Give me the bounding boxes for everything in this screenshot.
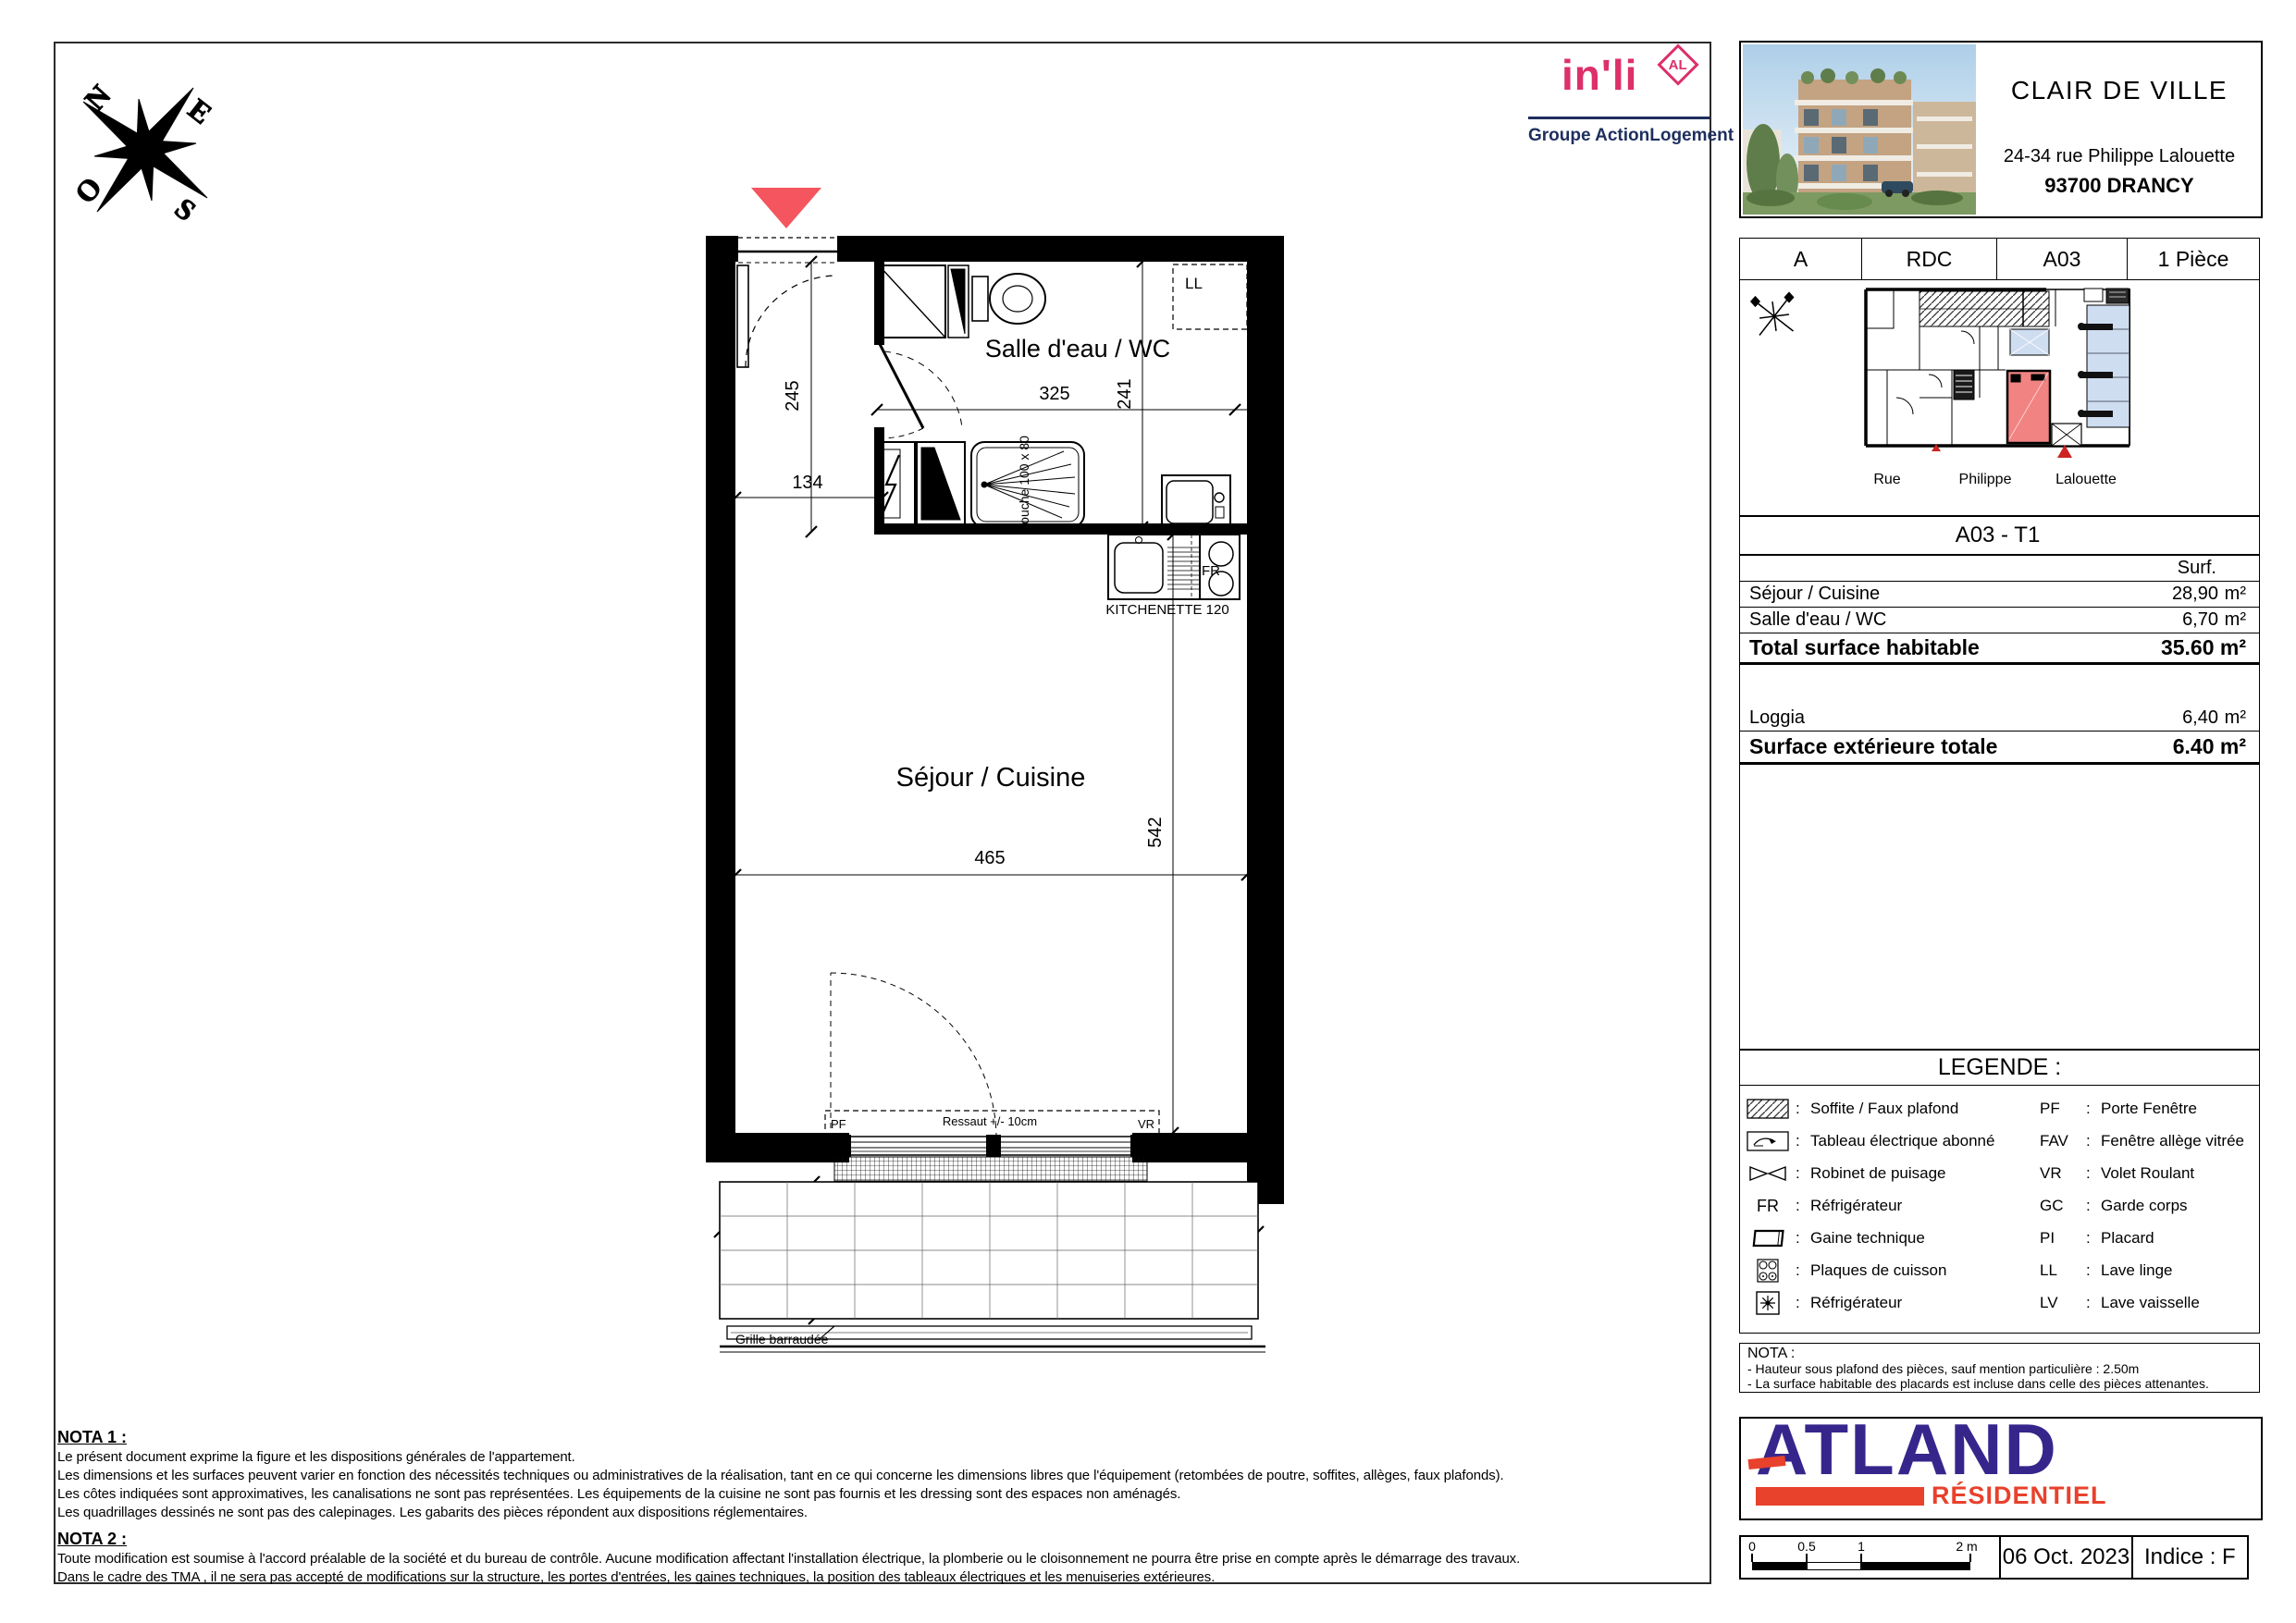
legend-entry: LV : Lave vaisselle [2036, 1289, 2258, 1317]
footer-date-cell: 06 Oct. 2023 [2001, 1537, 2133, 1578]
legend-colon: : [1796, 1164, 1810, 1183]
washing-machine-slot: LL [1173, 264, 1247, 329]
compass-rose-icon: N E O S [68, 79, 218, 227]
street-word: Lalouette [2055, 472, 2117, 487]
nota2-title: NOTA 2 : [57, 1528, 1704, 1550]
surface-col-header-row: Surf. [1740, 556, 2259, 582]
legend-label: Réfrigérateur [1810, 1197, 1902, 1215]
legend-label: Volet Roulant [2101, 1164, 2194, 1183]
project-address: 24-34 rue Philippe Lalouette [1980, 146, 2259, 167]
scale-bar: 0 0.5 1 2 m [1741, 1537, 2001, 1578]
legend-colon: : [2086, 1132, 2101, 1150]
legend-abbr: GC [2036, 1197, 2086, 1215]
nota1-line: Les quadrillages dessinés ne sont pas de… [57, 1504, 1704, 1522]
dim-134: 134 [792, 473, 822, 493]
surface-row-label: Salle d'eau / WC [1749, 609, 2182, 631]
nota1-block: NOTA 1 : Le présent document exprime la … [57, 1426, 1704, 1522]
legend-entry: GC : Garde corps [2036, 1192, 2258, 1220]
fridge-label: FR [1202, 563, 1220, 579]
surface-row: Loggia 6,40 m² [1740, 706, 2259, 732]
legend-label: Plaques de cuisson [1810, 1261, 1946, 1280]
banner-level: RDC [1862, 239, 1997, 279]
legend-colon: : [2086, 1261, 2101, 1280]
scale-seg-2 [1807, 1562, 1861, 1570]
inli-logo: in'li AL Groupe ActionLogement [1517, 48, 1711, 150]
legend-colon: : [1796, 1229, 1810, 1248]
scale-seg-3 [1861, 1562, 1970, 1570]
legend-colon: : [1796, 1132, 1810, 1150]
footer-indice: Indice : F [2144, 1544, 2236, 1570]
nota2-line: Dans le cadre des TMA , il ne sera pas a… [57, 1568, 1704, 1587]
legend-entry: VR : Volet Roulant [2036, 1160, 2258, 1187]
surface-table-title-row: A03 - T1 [1740, 517, 2259, 556]
footer-bar: 0 0.5 1 2 m 06 Oct. 2023 Indice : F [1739, 1535, 2249, 1580]
legend-entry: PF : Porte Fenêtre [2036, 1095, 2258, 1123]
nota2-block: NOTA 2 : Toute modification est soumise … [57, 1528, 1704, 1587]
toilet-icon [972, 274, 1045, 324]
loggia: Grille barraudée [720, 1182, 1265, 1352]
surface-table-title: A03 - T1 [1956, 523, 2041, 548]
mini-compass-icon [1751, 293, 1794, 336]
atland-block: ATLAND RÉSIDENTIEL [1739, 1417, 2263, 1520]
soffite-hatch-icon [1740, 1097, 1796, 1121]
mini-site-plan: Rue Philippe Lalouette [1739, 280, 2260, 514]
legend-abbr: FAV [2036, 1132, 2086, 1150]
legend-abbr: PI [2036, 1229, 2086, 1248]
legend-label: Fenêtre allège vitrée [2101, 1132, 2244, 1150]
dimension-labels: 325 241 245 134 465 542 489 124 [783, 378, 1166, 1265]
legend-colon: : [2086, 1229, 2101, 1248]
surface-row-value: 6,40 [2182, 707, 2218, 729]
inli-al-text: AL [1669, 57, 1687, 73]
legend-label: Porte Fenêtre [2101, 1100, 2197, 1118]
dim-465: 465 [974, 848, 1005, 868]
legend-title: LEGENDE : [1938, 1054, 2061, 1081]
surface-row-unit: m² [2218, 707, 2246, 729]
surface-row-unit: m² [2218, 584, 2246, 605]
entry-door [737, 238, 837, 367]
inli-wordmark: in'li [1562, 50, 1637, 100]
legend-entry: FAV : Fenêtre allège vitrée [2036, 1127, 2258, 1155]
nota1-line: Le présent document exprime la figure et… [57, 1448, 1704, 1467]
french-window: PF VR Ressaut +/- 10cm [825, 973, 1159, 1181]
ventilation-icon [1740, 1291, 1796, 1315]
dim-542: 542 [1145, 817, 1166, 847]
surface-ext-total-value: 6.40 m² [2173, 734, 2246, 759]
floor-plan-sheet: N E O S [0, 0, 2296, 1623]
legend-abbr: PF [2036, 1100, 2086, 1118]
nota-side-line: - La surface habitable des placards est … [1747, 1376, 2252, 1391]
footer-date: 06 Oct. 2023 [2003, 1544, 2129, 1570]
legend-colon: : [2086, 1197, 2101, 1215]
atland-wordmark: ATLAND [1756, 1408, 2058, 1492]
scale-tick-label: 0.5 [1797, 1539, 1815, 1554]
shower-icon: Douche 100 x 80 [971, 436, 1084, 534]
inli-al-badge: AL [1657, 43, 1698, 85]
surface-ext-total-row: Surface extérieure totale 6.40 m² [1740, 732, 2259, 765]
legend-block: LEGENDE : : Soffite / Faux plafond : Tab… [1739, 1050, 2260, 1334]
room-label-living: Séjour / Cuisine [896, 763, 1086, 793]
surface-row-unit: m² [2218, 609, 2246, 631]
legend-colon: : [2086, 1100, 2101, 1118]
atland-red-bar [1756, 1487, 1924, 1506]
legend-colon: : [2086, 1294, 2101, 1312]
surface-row-label: Séjour / Cuisine [1749, 584, 2172, 605]
legend-label: Soffite / Faux plafond [1810, 1100, 1958, 1118]
nota1-line: Les dimensions et les surfaces peuvent v… [57, 1467, 1704, 1485]
inli-underline [1528, 117, 1710, 119]
scale-tick-label: 1 [1858, 1539, 1865, 1554]
vr-label: VR [1138, 1117, 1154, 1131]
surface-total-row: Total surface habitable 35.60 m² [1740, 633, 2259, 665]
plaques-cuisson-icon [1740, 1259, 1796, 1283]
dim-241: 241 [1115, 378, 1135, 409]
ressaut-label: Ressaut +/- 10cm [943, 1114, 1037, 1128]
legend-colon: : [2086, 1164, 2101, 1183]
legend-label: Robinet de puisage [1810, 1164, 1946, 1183]
project-city: 93700 DRANCY [1980, 174, 2259, 198]
dim-325: 325 [1039, 384, 1069, 404]
footer-indice-cell: Indice : F [2133, 1537, 2247, 1578]
surface-row-value: 28,90 [2172, 584, 2218, 605]
duct-icon [948, 265, 969, 338]
nota-side-line: - Hauteur sous plafond des pièces, sauf … [1747, 1361, 2252, 1376]
fr-abbrev: FR [1740, 1197, 1796, 1216]
legend-label: Lave vaisselle [2101, 1294, 2200, 1312]
legend-colon: : [1796, 1261, 1810, 1280]
shower-label: Douche 100 x 80 [1017, 436, 1031, 534]
legend-abbr: LL [2036, 1261, 2086, 1280]
surface-row: Séjour / Cuisine 28,90 m² [1740, 582, 2259, 608]
nota2-line: Toute modification est soumise à l'accor… [57, 1550, 1704, 1568]
banner-type: 1 Pièce [2128, 239, 2259, 279]
legend-entry: LL : Lave linge [2036, 1257, 2258, 1285]
washbasin-icon [1162, 475, 1230, 529]
gaine-technique-icon [1740, 1226, 1796, 1250]
legend-entry: PI : Placard [2036, 1224, 2258, 1252]
scale-tick-label: 2 m [1956, 1539, 1977, 1554]
unit-banner: A RDC A03 1 Pièce [1740, 239, 2259, 280]
nota-side-block: NOTA : - Hauteur sous plafond des pièces… [1739, 1343, 2260, 1393]
scale-seg-1 [1752, 1562, 1807, 1570]
mini-parking [2087, 305, 2129, 427]
atland-sub: RÉSIDENTIEL [1932, 1482, 2107, 1510]
legend-label: Réfrigérateur [1810, 1294, 1902, 1312]
legend-colon: : [1796, 1197, 1810, 1215]
surface-total-label: Total surface habitable [1749, 635, 2161, 660]
washing-machine-label: LL [1185, 275, 1203, 292]
bathroom-door [880, 344, 962, 438]
surface-ext-total-label: Surface extérieure totale [1749, 734, 2173, 759]
legend-label: Garde corps [2101, 1197, 2188, 1215]
legend-abbr: VR [2036, 1164, 2086, 1183]
surface-row: Salle d'eau / WC 6,70 m² [1740, 608, 2259, 633]
grille-label: Grille barraudée [735, 1332, 829, 1346]
banner-lot: A03 [1997, 239, 2128, 279]
kitchenette-label: KITCHENETTE 120 [1105, 602, 1228, 618]
roller-shutter-housing [834, 1157, 1147, 1181]
legend-colon: : [1796, 1294, 1810, 1312]
dim-245: 245 [783, 380, 803, 411]
title-block: CLAIR DE VILLE 24-34 rue Philippe Laloue… [1739, 41, 2263, 218]
closet-icon [879, 265, 945, 338]
compass-s: S [169, 191, 203, 227]
legend-colon: : [1796, 1100, 1810, 1118]
surface-row-value: 6,70 [2182, 609, 2218, 631]
compass-n: N [78, 79, 117, 117]
legend-label: Placard [2101, 1229, 2154, 1248]
surface-table: A03 - T1 Surf. Séjour / Cuisine 28,90 m²… [1739, 516, 2260, 1050]
inli-tagline: Groupe ActionLogement [1528, 126, 1710, 146]
legend-label: Lave linge [2101, 1261, 2173, 1280]
nota1-line: Les côtes indiquées sont approximatives,… [57, 1485, 1704, 1504]
legend-label: Gaine technique [1810, 1229, 1925, 1248]
legend-label: Tableau électrique abonné [1810, 1132, 1994, 1150]
street-word: Rue [1873, 472, 1900, 487]
pf-label: PF [831, 1117, 846, 1131]
nota-side-title: NOTA : [1747, 1346, 2252, 1361]
scale-tick-label: 0 [1748, 1539, 1756, 1554]
surface-col-header: Surf. [2178, 558, 2216, 579]
street-word: Philippe [1959, 472, 2012, 487]
robinet-puisage-icon [1740, 1162, 1796, 1186]
banner-building: A [1740, 239, 1862, 279]
surface-row-label: Loggia [1749, 707, 2182, 729]
duct2-icon [917, 442, 965, 525]
entrance-arrow-icon [751, 188, 821, 228]
nota1-title: NOTA 1 : [57, 1426, 1704, 1448]
tableau-electrique-icon [1740, 1129, 1796, 1153]
project-title: CLAIR DE VILLE [1980, 76, 2259, 105]
legend-title-row: LEGENDE : [1740, 1051, 2259, 1086]
building-photo [1743, 44, 1976, 215]
surface-total-value: 35.60 m² [2161, 635, 2246, 660]
legend-abbr: LV [2036, 1294, 2086, 1312]
